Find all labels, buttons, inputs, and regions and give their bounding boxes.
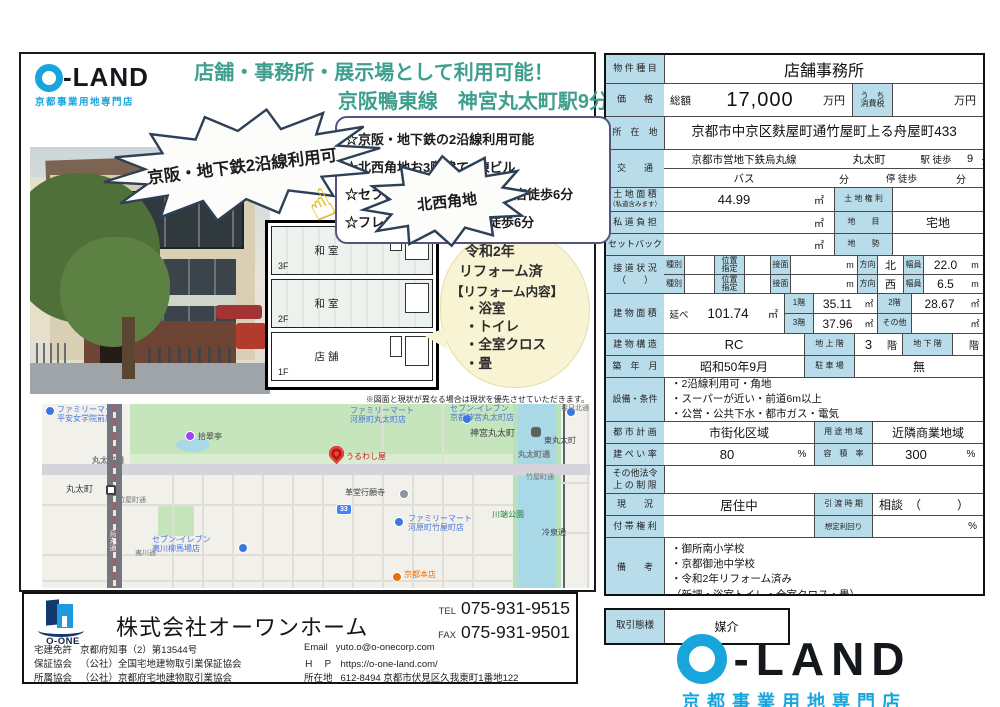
row-built-date: 築 年 月 昭和50年9月 駐 車 場 無 xyxy=(606,356,983,378)
property-type-value: 店舗事務所 xyxy=(664,55,983,83)
tax-value xyxy=(892,84,947,116)
floor-utility-box xyxy=(405,283,429,313)
private-road-value xyxy=(664,212,804,233)
jingu-marutamachi-station-icon xyxy=(531,427,541,437)
map-label-reisen-dori: 冷泉通 xyxy=(542,528,566,537)
land-rights-value xyxy=(892,188,983,211)
frontage-position-label: 位置 指定 xyxy=(714,275,744,293)
floor2-unit: ㎡ xyxy=(967,294,983,313)
feature-box: ☆京阪・地下鉄の2沿線利用可能 ☆北西角地お3階建て1棟ビル ☆セブンイレブン夷… xyxy=(335,116,611,244)
frontage-width: 22.0 xyxy=(923,256,967,274)
terrain-value xyxy=(892,234,983,255)
reform-item: ・トイレ xyxy=(465,318,589,336)
email-row: Emailyuto.o@o-onecorp.com xyxy=(304,642,435,653)
photo-red-awning xyxy=(216,305,262,319)
frontage-direction: 西 xyxy=(877,275,903,293)
row-address: 所 在 地 京都市中京区麩屋町通竹屋町上る舟屋町433 xyxy=(606,117,983,150)
map-minor-road xyxy=(322,466,324,588)
license-row: 宅建免許京都府知事（2）第13544号 xyxy=(34,642,197,656)
map-minor-road xyxy=(352,466,354,588)
map-minor-road xyxy=(262,466,264,588)
building-area-total: 101.74 xyxy=(694,294,762,333)
other-floor-unit: ㎡ xyxy=(967,314,983,333)
map-minor-road xyxy=(587,404,589,588)
row-label: 付 帯 権 利 xyxy=(606,516,664,537)
frontage-direction-label: 方向 xyxy=(857,275,877,293)
row-label: 私 道 負 担 xyxy=(606,212,664,233)
yield-label: 想定利回り xyxy=(814,516,872,537)
land-rights-label: 土 地 権 利 xyxy=(834,188,892,211)
map-label-kodo-temple: 革堂行願寺 xyxy=(345,488,385,497)
notes-lines: ・御所南小学校 ・京都御池中学校 ・令和2年リフォーム済み （新調・浴室トイレ・… xyxy=(664,538,983,596)
map-subway-line xyxy=(113,404,116,588)
far-value: 300 xyxy=(872,444,959,465)
status-value: 居住中 xyxy=(664,494,814,515)
address-value: 京都市中京区麩屋町通竹屋町上る舟屋町433 xyxy=(664,117,983,149)
reform-item: ・浴室 xyxy=(465,300,589,318)
feature-item: ☆セブンイレブン夷川柳馬場店徒歩6分 xyxy=(345,184,601,203)
frontage-position xyxy=(744,275,770,293)
access-bus-unit: 分 xyxy=(824,169,864,187)
map-label-shusuitei: 拾翠亭 xyxy=(198,432,222,441)
map-label-famima-takeyamachi: ファミリーマート 河原町竹屋町店 xyxy=(408,514,472,532)
map-label-karasuma-dori: 烏丸通 xyxy=(108,530,116,551)
hp-row: Ｈ Ｐhttps://o-one-land.com/ xyxy=(304,656,438,670)
price-value: 17,000 xyxy=(704,84,816,116)
address-value: 612-8494 京都市伏見区久我東町1番地122 xyxy=(341,673,519,684)
guarantee-row: 保証協会（公社）全国宅地建物取引業保証協会 xyxy=(34,656,242,670)
convenience-store-icon xyxy=(238,543,248,553)
frontage-face-label: 接面 xyxy=(770,275,790,293)
headline-station: 京阪鴨東線 神宮丸太町駅9分 xyxy=(41,85,615,114)
floor-plan: 3F 和室 2F 和室 1F 店舗 xyxy=(265,220,439,390)
feature-item: ☆北西角地お3階建て1棟ビル xyxy=(345,157,601,176)
guarantee-value: （公社）全国宅地建物取引業保証協会 xyxy=(80,659,242,670)
row-label: 価 格 xyxy=(606,84,664,116)
reform-contents-title: 【リフォーム内容】 xyxy=(451,281,589,300)
tel-row: TEL075-931-9515 xyxy=(384,598,570,619)
far-unit: % xyxy=(959,444,983,465)
coverage-unit: % xyxy=(790,444,814,465)
map-label-famima-heian: ファミリーマート 平安女学院前店 xyxy=(57,405,121,423)
access-walk-unit: 分 xyxy=(982,150,983,168)
floor-plan-2f: 2F 和室 xyxy=(271,279,433,328)
frontage-width-label: 幅員 xyxy=(903,275,923,293)
floor2-label: 2階 xyxy=(877,294,911,313)
convenience-store-icon xyxy=(394,517,404,527)
temple-icon xyxy=(399,489,409,499)
handover-label: 引 渡 時 期 xyxy=(814,494,872,515)
frontage-width: 6.5 xyxy=(923,275,967,293)
floor-plan-disclaimer: ※図面と現状が異なる場合は現状を優先させていただきます。 xyxy=(271,394,589,405)
teahouse-icon xyxy=(185,431,195,441)
below-ground-unit: 階 xyxy=(965,334,983,355)
floor3-label: 3階 xyxy=(785,314,813,333)
frontage-face xyxy=(790,256,843,274)
frontage-direction-label: 方向 xyxy=(857,256,877,274)
reform-item: ・畳 xyxy=(465,355,589,373)
map-label-higashi-marutamachi: 東丸太町 xyxy=(544,436,576,445)
convenience-store-icon xyxy=(45,406,55,416)
row-label: 現 況 xyxy=(606,494,664,515)
building-area-unit: ㎡ xyxy=(762,294,784,333)
feature-item: ☆京阪・地下鉄の2沿線利用可能 xyxy=(345,129,601,148)
other-law-value xyxy=(664,466,983,493)
map-label-seven-jingu: セブン-イレブン 京都神宮丸太町店 xyxy=(450,404,514,422)
reform-item: ・全室クロス xyxy=(465,336,589,354)
setback-unit: ㎡ xyxy=(804,234,834,255)
map-label-kawabata-park: 川端公園 xyxy=(492,510,524,519)
row-label: 備 考 xyxy=(606,538,664,596)
map-label-kasuga-kita: 春日北通 xyxy=(561,405,589,413)
land-value: 44.99 xyxy=(664,188,804,211)
rights-value xyxy=(664,516,814,537)
above-ground-label: 地 上 階 xyxy=(804,334,854,355)
below-ground-value xyxy=(952,334,965,355)
photo-fence xyxy=(148,347,238,363)
photo-red-van xyxy=(236,323,266,349)
address-label: 所在地 xyxy=(304,670,333,684)
map-minor-road xyxy=(292,466,294,588)
row-frontage: 接 道 状 況 （ ） 種別 位置 指定 接面 m 方向 北 幅員 22.0 m xyxy=(606,256,983,294)
frontage-face-unit: m xyxy=(843,275,857,293)
row-label: 接 道 状 況 （ ） xyxy=(606,256,664,293)
structure-value: RC xyxy=(664,334,804,355)
access-walk-min: 9 xyxy=(958,150,982,168)
tel-number: 075-931-9515 xyxy=(461,598,570,618)
frontage-width-label: 幅員 xyxy=(903,256,923,274)
row-label: 土 地 面 積（私道含みます） xyxy=(606,188,664,211)
floor1-unit: ㎡ xyxy=(861,294,877,313)
built-date-value: 昭和50年9月 xyxy=(664,356,804,377)
floor1-label: 1階 xyxy=(785,294,813,313)
other-floor-area xyxy=(911,314,967,333)
frontage-kind xyxy=(684,275,714,293)
map-label-famima-kawaramachi-marutamachi: ファミリーマート 河原町丸太町店 xyxy=(350,406,414,424)
assoc-row: 所属協会（公社）京都府宅地建物取引業協会 xyxy=(34,670,232,684)
floor2-area: 28.67 xyxy=(911,294,967,313)
shop-icon xyxy=(392,572,402,582)
property-table: 物 件 種 目 店舗事務所 価 格 総額 17,000 万円 う ち 消費税 万… xyxy=(604,53,985,596)
private-road-unit: ㎡ xyxy=(804,212,834,233)
map-minor-road xyxy=(172,466,174,588)
map-river-bank-right xyxy=(556,404,561,588)
row-private-road: 私 道 負 担 ㎡ 地 目 宅地 xyxy=(606,212,983,234)
photo-road xyxy=(30,363,270,394)
oland-brand-text: -LAND xyxy=(733,633,911,685)
frontage-kind-label: 種別 xyxy=(664,275,684,293)
company-name: 株式会社オーワンホーム xyxy=(116,610,368,642)
oone-logo-icon xyxy=(38,600,84,634)
hp-value: https://o-one-land.com/ xyxy=(341,659,438,670)
zoning-label: 用 途 地 域 xyxy=(814,422,872,443)
map-keihan-rail-line xyxy=(563,404,565,588)
flyer-page: -LAND 京都事業用地専門店 店舗・事務所・展示場として利用可能！ 京阪鴨東線… xyxy=(0,0,1000,707)
photo-tree-trunk xyxy=(122,317,135,379)
access-stop-unit: 分 xyxy=(939,169,983,187)
frontage-face-label: 接面 xyxy=(770,256,790,274)
map-minor-road xyxy=(232,466,234,588)
route-33-badge: 33 xyxy=(336,504,352,515)
terrain-label: 地 勢 xyxy=(834,234,892,255)
map-label-kyoto-honten: 京都本店 xyxy=(404,570,436,579)
assoc-label: 所属協会 xyxy=(34,670,72,684)
frontage-width-unit: m xyxy=(967,275,983,293)
map-small-park xyxy=(158,504,194,536)
map-label-jingu-marutamachi-station: 神宮丸太町 xyxy=(470,428,515,438)
parking-label: 駐 車 場 xyxy=(804,356,854,377)
reform-bubble: 令和2年 リフォーム済 【リフォーム内容】 ・浴室 ・トイレ ・全室クロス ・畳 xyxy=(440,230,590,388)
row-access: 交 通 京都市営地下鉄烏丸線 丸太町 駅 徒歩 9 分 バス 分 停 徒歩 分 xyxy=(606,150,983,188)
floor1-area: 35.11 xyxy=(813,294,861,313)
row-label: 築 年 月 xyxy=(606,356,664,377)
photo-bicycles xyxy=(36,343,70,363)
other-floor-label: その他 xyxy=(877,314,911,333)
land-category-value: 宅地 xyxy=(892,212,983,233)
feature-item: ☆フレスコ河原町丸太町徒歩6分 xyxy=(345,212,601,231)
access-walk-label: 駅 徒歩 xyxy=(914,150,958,168)
map-label-takeyamachi-e: 竹屋町通 xyxy=(526,474,554,482)
access-station: 丸太町 xyxy=(824,150,914,168)
row-other-law: その他法令 上 の 制 限 xyxy=(606,466,983,494)
land-category-label: 地 目 xyxy=(834,212,892,233)
map-marutamachi-street xyxy=(42,464,590,475)
map-minor-road xyxy=(442,404,444,588)
row-label: 建 ぺ い 率 xyxy=(606,444,664,465)
tax-unit: 万円 xyxy=(947,84,983,116)
map-label-marutamachi-dori-e: 丸太町通 xyxy=(518,450,550,459)
frontage-face-unit: m xyxy=(843,256,857,274)
headline-usage: 店舗・事務所・展示場として利用可能！ xyxy=(139,56,609,85)
company-info-box: O-ONE 株式会社オーワンホーム TEL075-931-9515 FAX075… xyxy=(22,592,578,684)
row-label: 建 物 構 造 xyxy=(606,334,664,355)
map-label-marutamachi-dori-w: 丸太町通 xyxy=(92,456,124,465)
above-ground-value: 3 xyxy=(854,334,882,355)
land-label: 土 地 面 積 xyxy=(613,189,657,201)
equipment-lines: ・2沿線利用可・角地 ・スーパーが近い・前道6m以上 ・公営・公共下水・都市ガス… xyxy=(664,378,983,421)
row-label: 建 物 面 積 xyxy=(606,294,664,333)
guarantee-label: 保証協会 xyxy=(34,656,72,670)
oland-logo-large: -LAND 京都事業用地専門店 xyxy=(604,632,985,707)
row-city-plan: 都 市 計 画 市街化区域 用 途 地 域 近隣商業地域 xyxy=(606,422,983,444)
frontage-kind-label: 種別 xyxy=(664,256,684,274)
room-label: 店舗 xyxy=(272,333,384,380)
frontage-kind xyxy=(684,256,714,274)
row-setback: セットバック ㎡ 地 勢 xyxy=(606,234,983,256)
fax-row: FAX075-931-9501 xyxy=(384,622,570,643)
row-property-type: 物 件 種 目 店舗事務所 xyxy=(606,55,983,84)
building-photo xyxy=(30,147,270,394)
price-prefix: 総額 xyxy=(664,84,704,116)
map-label-marutamachi-station: 丸太町 xyxy=(66,484,93,494)
floor3-area: 37.96 xyxy=(813,314,861,333)
license-label: 宅建免許 xyxy=(34,642,72,656)
land-sublabel: （私道含みます） xyxy=(609,201,661,209)
tax-label: う ち 消費税 xyxy=(852,84,892,116)
frontage-width-unit: m xyxy=(967,256,983,274)
reform-year: 令和2年 xyxy=(465,241,589,261)
fax-label: FAX xyxy=(438,630,456,641)
license-value: 京都府知事（2）第13544号 xyxy=(80,645,197,656)
marutamachi-station-icon xyxy=(106,485,116,495)
fax-number: 075-931-9501 xyxy=(461,622,570,642)
map-minor-road xyxy=(202,466,204,588)
handover-value: 相談 （ ） xyxy=(872,494,983,515)
row-label: セットバック xyxy=(606,234,664,255)
access-stop-label: 停 徒歩 xyxy=(864,169,939,187)
row-equipment: 設備・条件 ・2沿線利用可・角地 ・スーパーが近い・前道6m以上 ・公営・公共下… xyxy=(606,378,983,422)
row-price: 価 格 総額 17,000 万円 う ち 消費税 万円 xyxy=(606,84,983,117)
floor-plan-1f: 1F 店舗 xyxy=(271,332,433,381)
frontage-position xyxy=(744,256,770,274)
row-land-area: 土 地 面 積（私道含みます） 44.99 ㎡ 土 地 権 利 xyxy=(606,188,983,212)
row-notes: 備 考 ・御所南小学校 ・京都御池中学校 ・令和2年リフォーム済み （新調・浴室… xyxy=(606,538,983,596)
row-label: 交 通 xyxy=(606,150,664,187)
row-label: その他法令 上 の 制 限 xyxy=(606,466,664,493)
city-plan-value: 市街化区域 xyxy=(664,422,814,443)
floor3-unit: ㎡ xyxy=(861,314,877,333)
frontage-position-label: 位置 指定 xyxy=(714,256,744,274)
coverage-value: 80 xyxy=(664,444,790,465)
reform-done: リフォーム済 xyxy=(459,261,589,281)
row-label: 設備・条件 xyxy=(606,378,664,421)
oland-brand-subtitle: 京都事業用地専門店 xyxy=(604,688,985,707)
zoning-value: 近隣商業地域 xyxy=(872,422,983,443)
email-label: Email xyxy=(304,642,328,653)
row-label: 物 件 種 目 xyxy=(606,55,664,83)
tel-label: TEL xyxy=(439,606,456,617)
assoc-value: （公社）京都府宅地建物取引業協会 xyxy=(80,673,232,684)
row-label: 都 市 計 画 xyxy=(606,422,664,443)
left-panel: -LAND 京都事業用地専門店 店舗・事務所・展示場として利用可能！ 京阪鴨東線… xyxy=(19,52,596,592)
row-coverage: 建 ぺ い 率 80 % 容 積 率 300 % xyxy=(606,444,983,466)
row-status: 現 況 居住中 引 渡 時 期 相談 （ ） xyxy=(606,494,983,516)
access-line: 京都市営地下鉄烏丸線 xyxy=(664,150,824,168)
map-minor-road xyxy=(472,466,474,588)
row-label: 所 在 地 xyxy=(606,117,664,149)
map-label-seven-ebisugawa: セブン-イレブン 夷川柳馬場店 xyxy=(152,535,211,553)
far-label: 容 積 率 xyxy=(814,444,872,465)
row-structure: 建 物 構 造 RC 地 上 階 3 階 地 下 階 階 xyxy=(606,334,983,356)
frontage-face xyxy=(790,275,843,293)
address-row: 所在地612-8494 京都市伏見区久我東町1番地122 xyxy=(304,670,518,684)
price-unit: 万円 xyxy=(816,84,852,116)
building-area-prefix: 延べ xyxy=(664,294,694,333)
floor-utility-box-2 xyxy=(390,336,402,357)
land-unit: ㎡ xyxy=(804,188,834,211)
room-label: 和室 xyxy=(272,280,384,327)
row-rights: 付 帯 権 利 想定利回り % xyxy=(606,516,983,538)
area-map: 33 ファミリーマート 平安女学院前店 拾翠亭 丸太町通 丸太町 竹屋町通 夷川… xyxy=(42,404,590,588)
map-minor-road xyxy=(561,482,590,484)
row-building-area: 建 物 面 積 延べ 101.74 ㎡ 1階 35.11 ㎡ 2階 28.67 … xyxy=(606,294,983,334)
setback-value xyxy=(664,234,804,255)
hp-label: Ｈ Ｐ xyxy=(304,656,333,670)
map-label-takeyamachi-w: 竹屋町通 xyxy=(118,497,146,505)
map-label-uruwashiya: うるわし屋 xyxy=(346,452,386,461)
frontage-direction: 北 xyxy=(877,256,903,274)
below-ground-label: 地 下 階 xyxy=(902,334,952,355)
yield-unit: % xyxy=(872,516,983,537)
email-value: yuto.o@o-onecorp.com xyxy=(336,642,435,653)
above-ground-unit: 階 xyxy=(882,334,902,355)
access-bus: バス xyxy=(664,169,824,187)
parking-value: 無 xyxy=(854,356,983,377)
oland-o-ring-icon xyxy=(677,634,727,684)
